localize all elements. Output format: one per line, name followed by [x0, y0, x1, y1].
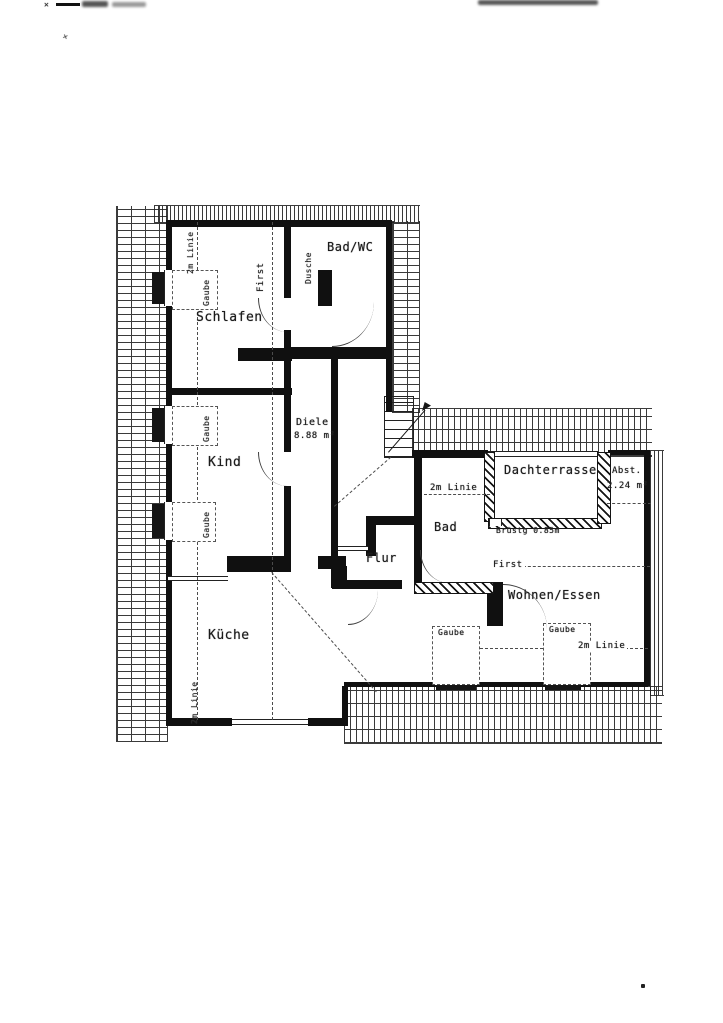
scan-smudge	[478, 0, 598, 5]
abstellraum-dash	[607, 503, 651, 504]
window-sill	[152, 272, 164, 304]
wall-bottom-kueche	[166, 718, 232, 726]
room-label-abstellraum: Abst.	[612, 466, 642, 476]
wall-top-right-wing	[412, 450, 488, 458]
wall-bottom-kueche	[308, 718, 346, 726]
wall-badwc-bottom	[291, 347, 389, 359]
door-arc-kind	[258, 452, 287, 486]
wall-kind-kueche	[227, 556, 291, 572]
wall-bad-terrace	[484, 452, 495, 522]
door-arc-kueche	[348, 590, 378, 625]
two-meter-label-left-top: 2m Linie	[186, 222, 195, 274]
terrace-top-edge	[488, 451, 598, 457]
gaube-label: Gaube	[202, 274, 211, 306]
room-label-diele: Diele	[296, 417, 329, 428]
wall-corridor-left	[284, 486, 291, 558]
scan-smudge	[112, 2, 146, 7]
two-meter-label-bad: 2m Linie	[430, 483, 477, 493]
wall-flur-bottom	[332, 580, 402, 589]
door-arc-bad	[420, 550, 449, 583]
scanned-page: { "page": { "paper_color": "#ffffff", "i…	[0, 0, 723, 1023]
two-meter-label-bottom: 2m Linie	[576, 641, 627, 651]
wall-left	[166, 540, 172, 726]
room-label-kueche: Küche	[208, 628, 250, 643]
gaube-schlafen	[172, 270, 218, 310]
roof-valley-line	[334, 457, 391, 507]
door-arc-badwc	[332, 302, 374, 347]
gaube-label: Gaube	[202, 506, 211, 538]
wall-bottom-right-wing	[344, 682, 648, 687]
wall-schlafen-kind	[172, 388, 292, 395]
window-sill	[152, 504, 164, 538]
room-label-badwc: Bad/WC	[327, 240, 373, 254]
two-meter-label-left-bottom: 2m Linie	[190, 676, 199, 724]
threshold-flur	[338, 546, 368, 551]
wall-bad-left	[414, 458, 422, 582]
two-meter-line-bad	[424, 494, 490, 495]
room-area-abstellraum: 2.24 m²	[607, 481, 648, 491]
wall-corridor-right	[331, 358, 338, 588]
dusche-label: Dusche	[304, 240, 313, 284]
wall-flur-wohnen	[414, 582, 494, 594]
scan-dot	[641, 984, 645, 988]
roof-hatch-upper-right	[392, 221, 420, 413]
scan-line	[56, 3, 80, 6]
room-label-flur: Flur	[366, 551, 397, 565]
wall-kind-kueche-thin	[168, 576, 228, 581]
room-label-wohnen-essen: Wohnen/Essen	[508, 588, 601, 602]
room-label-schlafen: Schlafen	[196, 310, 263, 325]
parapet-label: Brüstg 0.85m	[496, 526, 560, 535]
wall-left	[166, 220, 172, 270]
scan-smudge	[82, 1, 108, 7]
ridge-label-horizontal: First	[491, 560, 525, 570]
wall-top	[166, 220, 392, 227]
wall-left	[166, 444, 172, 502]
scan-mark-x: ✕	[62, 31, 70, 41]
gaube-label: Gaube	[438, 628, 465, 637]
wall-corridor-left	[284, 330, 291, 452]
gaube-label: Gaube	[202, 410, 211, 442]
wall-corridor-left	[284, 222, 291, 298]
terrace-door	[489, 519, 502, 526]
room-label-kind: Kind	[208, 455, 241, 470]
scan-mark-x: ✕	[44, 0, 49, 9]
roof-hatch-right	[650, 450, 664, 696]
ridge-label-vertical: First	[256, 250, 266, 292]
floor-plan: ✕ ✕	[0, 0, 723, 1023]
roof-hatch-bottom	[344, 686, 662, 744]
room-label-bad: Bad	[434, 520, 457, 534]
ridge-line-horizontal	[508, 566, 650, 567]
window-kueche	[232, 719, 308, 725]
wall-shower	[318, 270, 332, 306]
room-label-dachterrasse: Dachterrasse	[504, 463, 597, 477]
gaube-kind-upper	[172, 406, 218, 446]
window-sill	[152, 408, 164, 442]
gaube-label: Gaube	[549, 625, 576, 634]
room-area-diele: 8.88 m²	[294, 431, 335, 441]
wall-right-upper-wing	[386, 220, 392, 412]
